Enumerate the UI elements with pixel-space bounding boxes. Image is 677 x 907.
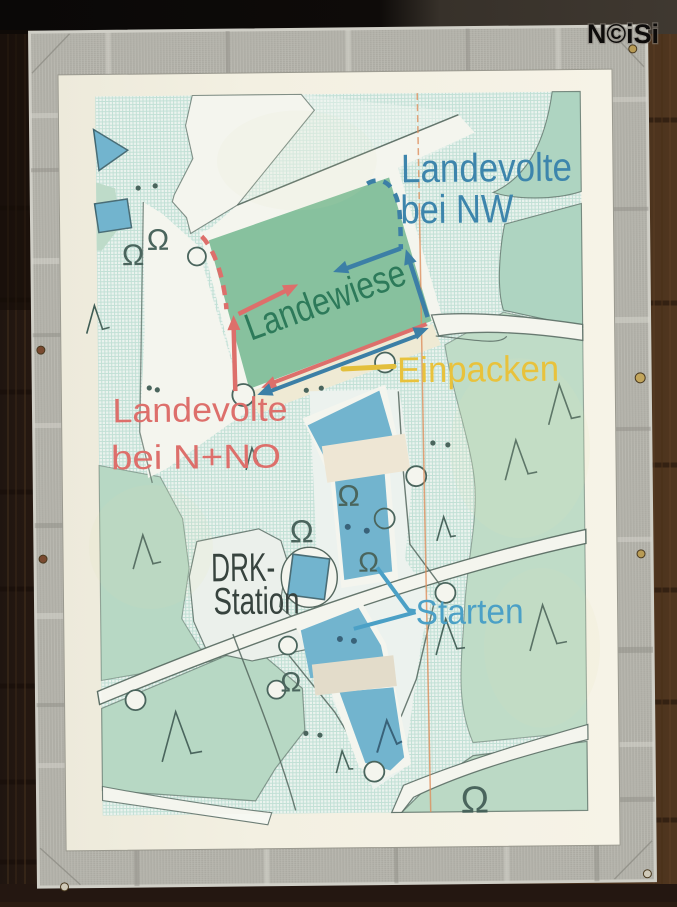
- svg-text:Einpacken: Einpacken: [397, 348, 559, 391]
- svg-text:Starten: Starten: [415, 592, 523, 632]
- svg-text:N©iSi: N©iSi: [587, 19, 659, 49]
- svg-text:bei NW: bei NW: [400, 187, 514, 232]
- svg-text:bei N+NO: bei N+NO: [111, 438, 281, 478]
- svg-text:Station: Station: [213, 580, 299, 623]
- svg-text:Landevolte: Landevolte: [401, 146, 572, 192]
- svg-text:Landevolte: Landevolte: [112, 391, 287, 431]
